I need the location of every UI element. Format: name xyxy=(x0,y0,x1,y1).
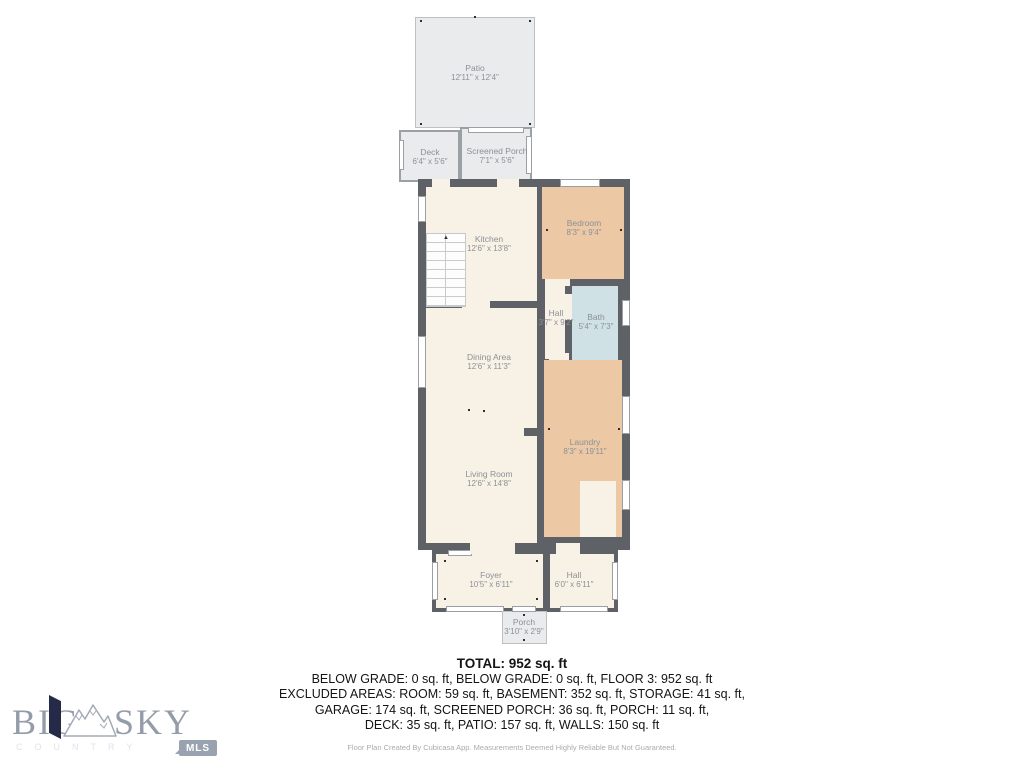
label-living: Living Room 12'6" x 14'8" xyxy=(465,469,512,489)
corner-tick xyxy=(536,598,538,600)
stair-direction-arrow: ▲ xyxy=(443,235,449,241)
label-foyer: Foyer 10'5" x 6'11" xyxy=(469,570,512,590)
corner-tick xyxy=(536,560,538,562)
window-bath-right xyxy=(622,300,630,326)
corner-tick xyxy=(546,229,548,231)
corner-tick xyxy=(444,560,446,562)
wall-foyer-hall xyxy=(543,554,550,608)
floorplan-page: ▲ xyxy=(0,0,1024,768)
corner-tick xyxy=(523,639,525,641)
room-name: Bath xyxy=(579,312,614,322)
room-dims: 12'6" x 11'3" xyxy=(467,362,511,372)
room-dims: 10'5" x 6'11" xyxy=(469,580,512,590)
window-laundry-closet-right xyxy=(622,480,630,510)
label-screened-porch: Screened Porch 7'1" x 5'6" xyxy=(467,146,528,166)
label-dining: Dining Area 12'6" x 11'3" xyxy=(467,352,511,372)
room-dims: 8'3" x 19'11" xyxy=(563,447,606,457)
corner-tick xyxy=(474,16,476,18)
staircase: ▲ xyxy=(426,233,466,307)
room-dims: 7'1" x 5'6" xyxy=(467,156,528,166)
corner-tick xyxy=(620,229,622,231)
label-patio: Patio 12'11" x 12'4" xyxy=(451,63,499,83)
room-dims: 3'7" x 9'2" xyxy=(539,318,574,328)
logo-word-sky: SKY xyxy=(114,704,192,740)
label-porch: Porch 3'10" x 2'9" xyxy=(504,617,543,637)
room-name: Hall xyxy=(539,308,574,318)
label-hall-lower: Hall 6'0" x 6'11" xyxy=(555,570,594,590)
room-name: Laundry xyxy=(563,437,606,447)
corner-tick xyxy=(420,123,422,125)
window-foyer-top xyxy=(448,550,472,556)
summary-line: BELOW GRADE: 0 sq. ft, BELOW GRADE: 0 sq… xyxy=(0,672,1024,688)
window-foyer-left xyxy=(432,562,438,600)
label-hall-upper: Hall 3'7" x 9'2" xyxy=(539,308,574,328)
floor-laundry-closet xyxy=(580,481,616,537)
window-bedroom-top xyxy=(560,179,600,187)
room-name: Screened Porch xyxy=(467,146,528,156)
room-dims: 12'6" x 14'8" xyxy=(465,479,512,489)
window-kitchen-left xyxy=(418,196,426,222)
room-dims: 5'4" x 7'3" xyxy=(579,322,614,332)
room-name: Patio xyxy=(451,63,499,73)
room-dims: 6'0" x 6'11" xyxy=(555,580,594,590)
door-bedroom xyxy=(548,279,570,286)
mls-badge: MLS xyxy=(179,740,217,756)
room-dims: 12'11" x 12'4" xyxy=(451,73,499,83)
room-name: Hall xyxy=(555,570,594,580)
room-name: Kitchen xyxy=(467,234,511,244)
door-kitchen-screened-porch xyxy=(497,179,519,187)
room-name: Bedroom xyxy=(567,218,602,228)
corner-tick xyxy=(420,20,422,22)
room-dims: 12'6" x 13'8" xyxy=(467,244,511,254)
room-dims: 3'10" x 2'9" xyxy=(504,627,543,637)
wall-dining-living-stub xyxy=(524,428,537,436)
corner-tick xyxy=(444,598,446,600)
deck-side-window xyxy=(399,140,404,170)
room-dims: 8'3" x 9'4" xyxy=(567,228,602,238)
label-bath: Bath 5'4" x 7'3" xyxy=(579,312,614,332)
room-name: Deck xyxy=(413,147,448,157)
screened-porch-window xyxy=(468,127,524,133)
door-hall-laundry xyxy=(556,543,580,554)
corner-tick xyxy=(529,20,531,22)
door-laundry xyxy=(549,353,569,360)
corner-tick xyxy=(483,410,485,412)
window-dining-left xyxy=(418,336,426,388)
window-hall-right xyxy=(612,562,618,600)
corner-tick xyxy=(468,409,470,411)
window-laundry-right xyxy=(622,396,630,434)
corner-tick xyxy=(523,614,525,616)
corner-tick xyxy=(548,428,550,430)
door-kitchen-deck xyxy=(432,179,450,187)
door-porch xyxy=(512,606,536,612)
wall-kitchen-dining-right xyxy=(490,301,537,308)
room-name: Living Room xyxy=(465,469,512,479)
room-name: Foyer xyxy=(469,570,512,580)
label-deck: Deck 6'4" x 5'6" xyxy=(413,147,448,167)
mountain-icon xyxy=(62,702,118,738)
big-sky-country-mls-logo: BIG SKY COUNTRY MLS xyxy=(8,690,238,762)
room-dims: 6'4" x 5'6" xyxy=(413,157,448,167)
total-area: TOTAL: 952 sq. ft xyxy=(0,656,1024,672)
window-foyer-bottom xyxy=(446,606,504,612)
room-name: Porch xyxy=(504,617,543,627)
door-living-foyer xyxy=(470,543,515,554)
corner-tick xyxy=(618,428,620,430)
room-name: Dining Area xyxy=(467,352,511,362)
floor-plan: ▲ xyxy=(0,0,1024,768)
window-hall-bottom xyxy=(560,606,608,612)
corner-tick xyxy=(529,123,531,125)
logo-subtitle: COUNTRY xyxy=(16,742,144,752)
label-kitchen: Kitchen 12'6" x 13'8" xyxy=(467,234,511,254)
label-bedroom: Bedroom 8'3" x 9'4" xyxy=(567,218,602,238)
logo-banner-shape xyxy=(49,695,61,739)
label-laundry: Laundry 8'3" x 19'11" xyxy=(563,437,606,457)
